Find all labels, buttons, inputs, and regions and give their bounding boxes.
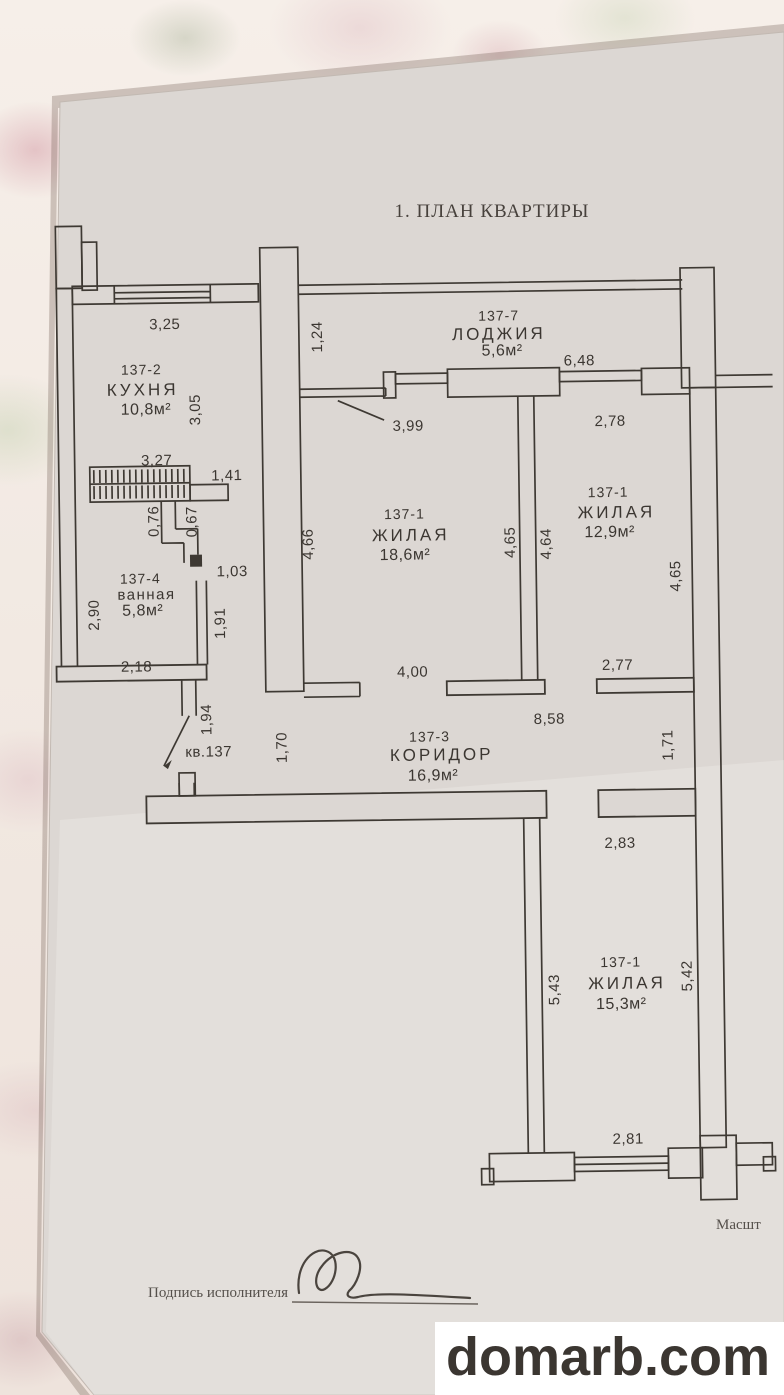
floor-plan-photo: 1. ПЛАН КВАРТИРЫ — [0, 0, 784, 1395]
dim-living-right-bottom: 2,77 — [602, 657, 633, 674]
dim-living-center-right: 4,65 — [502, 527, 519, 558]
dim-bottom-room-top: 2,83 — [604, 835, 635, 852]
room-kitchen-number: 137-2 — [121, 361, 162, 378]
room-living-bottom-area: 15,3м² — [596, 995, 647, 1013]
dim-vent-top: 3,27 — [141, 452, 172, 469]
room-living-bottom-number: 137-1 — [600, 954, 641, 971]
room-living-center-area: 18,6м² — [380, 546, 431, 564]
dim-corridor-length: 8,58 — [534, 711, 565, 728]
room-loggia-area: 5,6м² — [481, 342, 522, 360]
wall-corridor-bottom — [146, 791, 546, 824]
dim-living-center-left: 4,66 — [300, 528, 317, 559]
watermark-text: domarb.com — [446, 1327, 770, 1387]
room-kitchen-name: КУХНЯ — [107, 380, 179, 400]
dim-loggia-width: 6,48 — [564, 352, 595, 369]
dim-kitchen-top: 3,25 — [149, 316, 180, 333]
photographed-document: 1. ПЛАН КВАРТИРЫ — [0, 0, 784, 1395]
room-corridor-number: 137-3 — [409, 728, 450, 745]
dim-bottom-room-right: 5,42 — [679, 960, 696, 991]
wall-living-bottom-b — [447, 680, 545, 695]
dim-corridor-left: 1,70 — [273, 732, 290, 763]
dim-divider-right: 4,64 — [538, 528, 555, 559]
watermark: domarb.com — [435, 1322, 784, 1395]
dim-bottom-room-left: 5,43 — [546, 974, 563, 1005]
room-living-right-name: ЖИЛАЯ — [577, 502, 655, 522]
signature-label: Подпись исполнителя — [148, 1285, 288, 1301]
room-corridor-area: 16,9м² — [408, 767, 459, 785]
plumbing-riser — [190, 555, 202, 567]
room-kitchen-area: 10,8м² — [121, 401, 172, 419]
room-living-center-name: ЖИЛАЯ — [372, 525, 450, 545]
wall-living-right-bottom — [597, 678, 694, 693]
dim-flue-left: 0,76 — [145, 506, 162, 537]
dim-bathroom-right: 1,91 — [212, 608, 229, 639]
dim-wall-gap: 1,24 — [309, 321, 326, 352]
scale-label: Масшт — [716, 1217, 761, 1233]
room-living-right-area: 12,9м² — [584, 524, 635, 542]
room-bathroom-name: ванная — [117, 586, 175, 604]
dim-vent-right: 1,41 — [211, 467, 242, 484]
room-bathroom-number: 137-4 — [120, 570, 161, 587]
dim-living-right-side: 4,65 — [667, 560, 684, 591]
apartment-number-label: кв.137 — [185, 743, 232, 761]
dim-living-center-bottom: 4,00 — [397, 663, 428, 680]
room-loggia-name: ЛОДЖИЯ — [452, 324, 546, 344]
dim-shaft-offset: 1,03 — [216, 563, 247, 580]
dim-entry-wall: 1,94 — [198, 704, 215, 735]
room-living-right-number: 137-1 — [588, 484, 629, 501]
room-loggia-number: 137-7 — [478, 307, 519, 324]
dim-corridor-right: 1,71 — [659, 729, 676, 760]
wall-bottomroom-top — [598, 789, 695, 817]
room-living-center-number: 137-1 — [384, 505, 425, 522]
dim-bottom-room-bottom: 2,81 — [612, 1131, 643, 1148]
dim-bathroom-left: 2,90 — [86, 599, 103, 630]
room-living-bottom-name: ЖИЛАЯ — [588, 973, 666, 993]
room-corridor-name: КОРИДОР — [390, 745, 494, 765]
dim-kitchen-depth: 3,05 — [187, 394, 204, 425]
dim-living-center-door: 3,99 — [392, 418, 423, 435]
room-bathroom-area: 5,8м² — [122, 602, 163, 620]
dim-bathroom-bottom: 2,18 — [121, 658, 152, 675]
page-title: 1. ПЛАН КВАРТИРЫ — [395, 201, 590, 222]
dim-flue-right: 0,67 — [183, 506, 200, 537]
dim-living-right-top: 2,78 — [594, 413, 625, 430]
